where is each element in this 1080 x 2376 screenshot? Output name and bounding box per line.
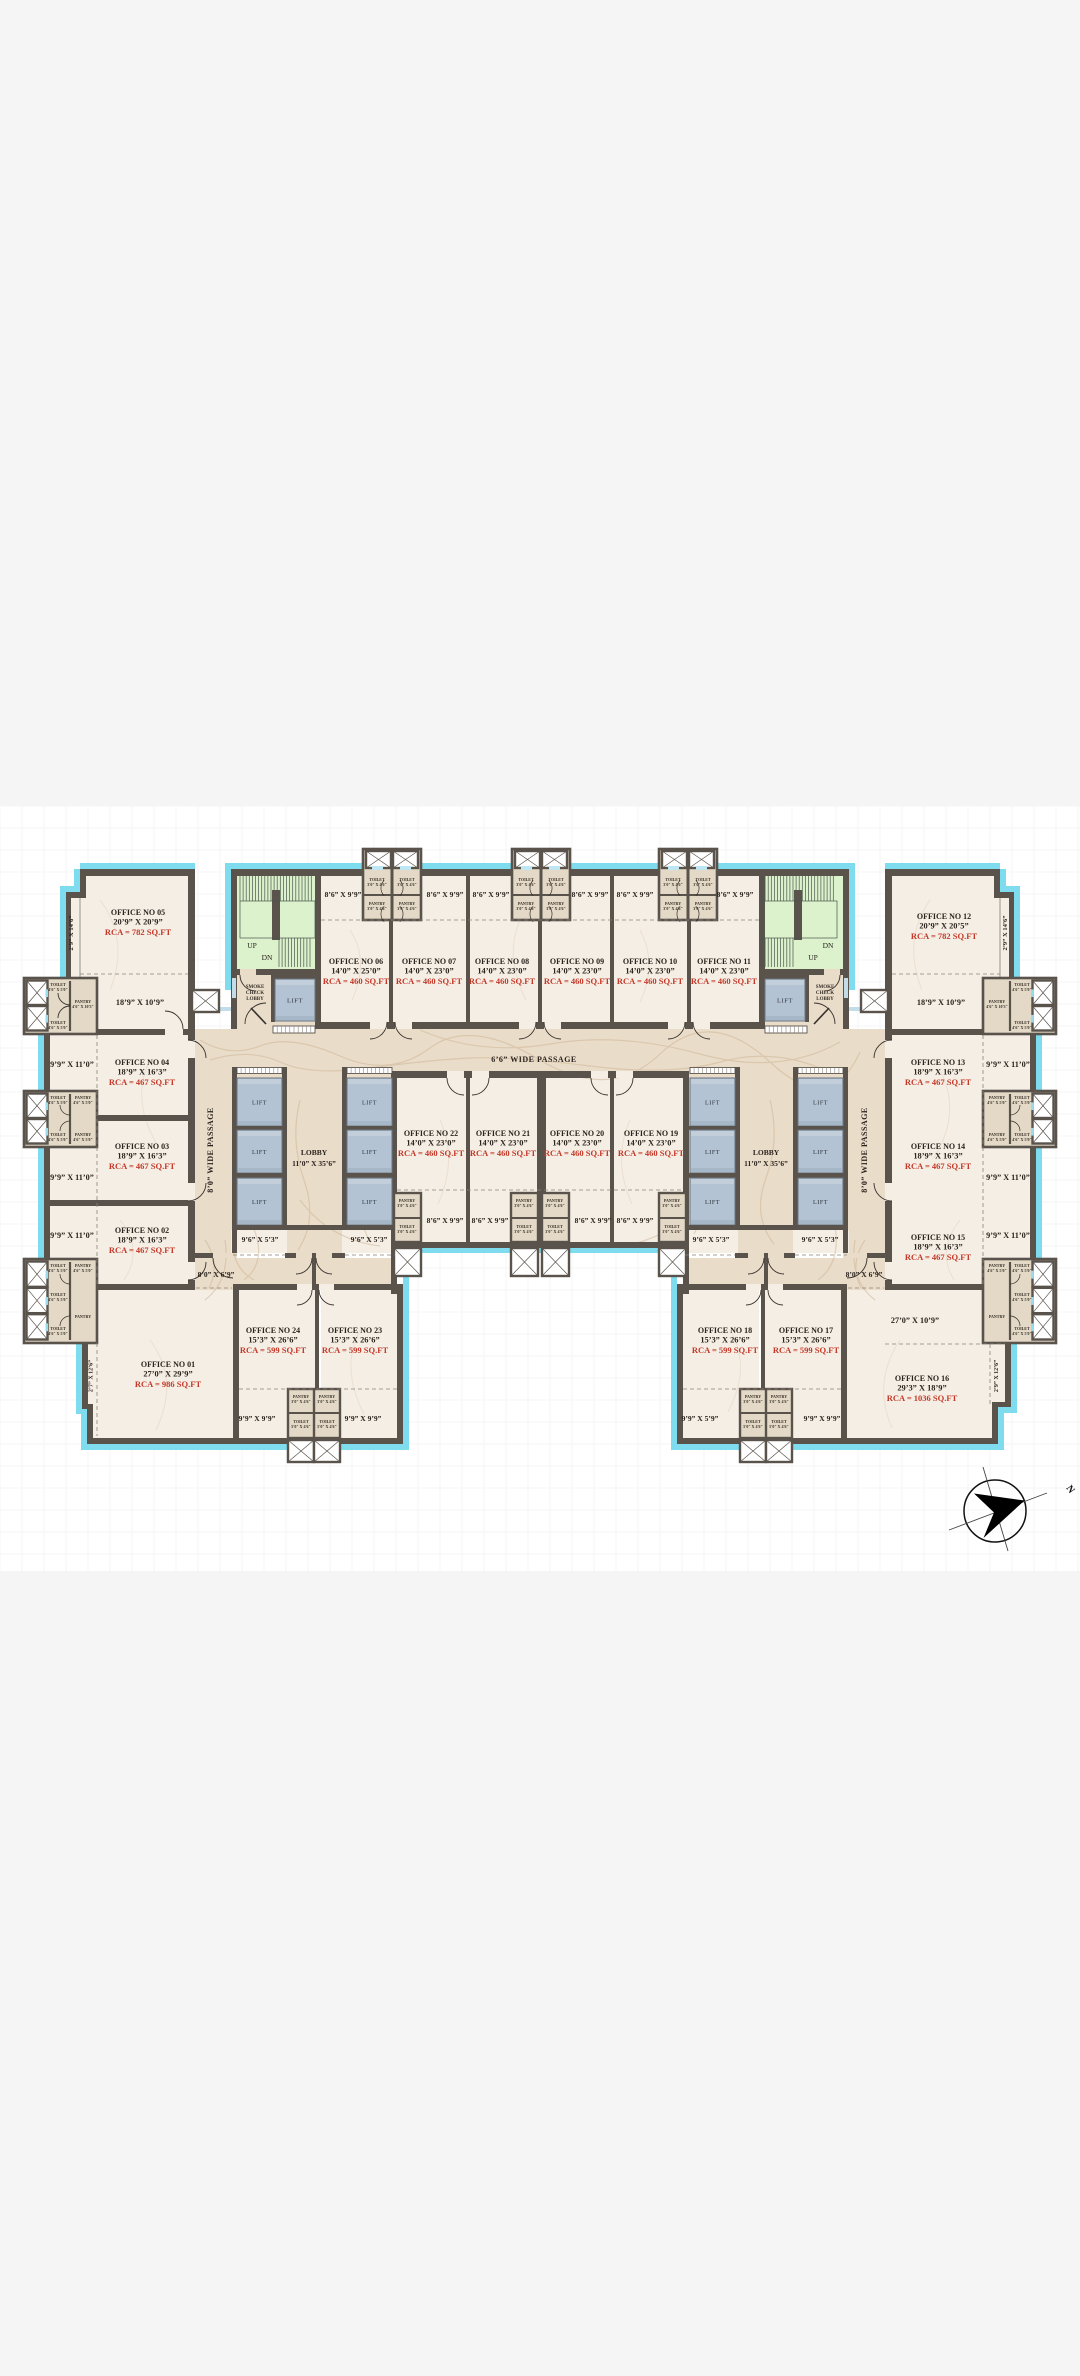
svg-text:20’9” X 20’9”: 20’9” X 20’9” — [113, 918, 162, 927]
svg-text:9’9” X 5’9”: 9’9” X 5’9” — [682, 1414, 719, 1423]
svg-text:11’0” X 35’6”: 11’0” X 35’6” — [744, 1159, 788, 1168]
svg-text:LIFT: LIFT — [287, 998, 303, 1005]
svg-text:LIFT: LIFT — [362, 1200, 377, 1206]
svg-text:LIFT: LIFT — [705, 1150, 720, 1156]
svg-text:LIFT: LIFT — [813, 1200, 828, 1206]
svg-text:9’9” X 11’0”: 9’9” X 11’0” — [986, 1173, 1030, 1182]
svg-text:SMOKE: SMOKE — [246, 985, 265, 990]
svg-text:18’9” X 16’3”: 18’9” X 16’3” — [117, 1236, 166, 1245]
svg-text:4'6" X 5'0": 4'6" X 5'0" — [1012, 1331, 1032, 1336]
svg-text:18’9” X 16’3”: 18’9” X 16’3” — [117, 1068, 166, 1077]
svg-text:8’6” X 9’9”: 8’6” X 9’9” — [325, 890, 362, 899]
svg-text:LOBBY: LOBBY — [753, 1148, 780, 1157]
svg-text:OFFICE NO 08: OFFICE NO 08 — [475, 957, 529, 966]
svg-text:OFFICE NO 23: OFFICE NO 23 — [328, 1326, 382, 1335]
svg-text:8’6” X 9’9”: 8’6” X 9’9” — [572, 890, 609, 899]
svg-text:5'0" X 4'6": 5'0" X 4'6" — [291, 1424, 311, 1429]
svg-text:CHECK: CHECK — [816, 991, 834, 996]
svg-text:8’6” X 9’9”: 8’6” X 9’9” — [617, 890, 654, 899]
svg-text:OFFICE NO 14: OFFICE NO 14 — [911, 1142, 965, 1151]
svg-text:4'6" X 5'0": 4'6" X 5'0" — [48, 1331, 68, 1336]
svg-text:9’9” X 11’0”: 9’9” X 11’0” — [50, 1231, 94, 1240]
svg-text:3'0" X 4'6": 3'0" X 4'6" — [367, 882, 387, 887]
svg-text:9’9” X 11’0”: 9’9” X 11’0” — [50, 1173, 94, 1182]
svg-text:4'6" X 5'0": 4'6" X 5'0" — [73, 1100, 93, 1105]
svg-text:UP: UP — [808, 953, 818, 962]
svg-text:18’9” X 16’3”: 18’9” X 16’3” — [913, 1068, 962, 1077]
svg-text:18’9” X 10’9”: 18’9” X 10’9” — [917, 998, 965, 1007]
svg-text:RCA = 460 SQ.FT: RCA = 460 SQ.FT — [544, 976, 611, 986]
svg-text:8’6” X 9’9”: 8’6” X 9’9” — [617, 1216, 654, 1225]
svg-text:OFFICE NO 04: OFFICE NO 04 — [115, 1058, 169, 1067]
svg-text:18’9” X 10’9”: 18’9” X 10’9” — [116, 998, 164, 1007]
svg-text:OFFICE NO 21: OFFICE NO 21 — [476, 1129, 530, 1138]
svg-text:RCA = 986 SQ.FT: RCA = 986 SQ.FT — [135, 1379, 202, 1389]
svg-text:3'0" X 4'6": 3'0" X 4'6" — [769, 1399, 789, 1404]
svg-text:4'6" X 10'3": 4'6" X 10'3" — [986, 1004, 1008, 1009]
svg-text:5'0" X 4'6": 5'0" X 4'6" — [317, 1424, 337, 1429]
svg-text:RCA = 460 SQ.FT: RCA = 460 SQ.FT — [544, 1148, 611, 1158]
svg-text:PANTRY: PANTRY — [75, 1314, 91, 1319]
svg-text:LIFT: LIFT — [252, 1200, 267, 1206]
svg-text:RCA = 599 SQ.FT: RCA = 599 SQ.FT — [240, 1345, 307, 1355]
svg-text:SMOKE: SMOKE — [816, 985, 835, 990]
svg-text:4'6" X 10'3": 4'6" X 10'3" — [72, 1004, 94, 1009]
svg-text:3'0" X 4'6": 3'0" X 4'6" — [662, 1203, 682, 1208]
svg-text:2’9” X 14’6”: 2’9” X 14’6” — [68, 915, 75, 950]
svg-text:OFFICE NO 01: OFFICE NO 01 — [141, 1360, 195, 1369]
svg-text:3'0" X 4'6": 3'0" X 4'6" — [663, 882, 683, 887]
svg-text:4'6" X 5'0": 4'6" X 5'0" — [987, 1268, 1007, 1273]
svg-text:8’6” X 9’9”: 8’6” X 9’9” — [473, 890, 510, 899]
svg-text:3'0" X 4'6": 3'0" X 4'6" — [545, 1229, 565, 1234]
svg-text:OFFICE NO 20: OFFICE NO 20 — [550, 1129, 604, 1138]
svg-text:9’9” X 9’9”: 9’9” X 9’9” — [345, 1414, 382, 1423]
svg-text:RCA = 467 SQ.FT: RCA = 467 SQ.FT — [109, 1161, 176, 1171]
svg-text:5'0" X 4'6": 5'0" X 4'6" — [769, 1424, 789, 1429]
svg-text:LOBBY: LOBBY — [246, 997, 264, 1002]
svg-text:14’0” X 23’0”: 14’0” X 23’0” — [625, 967, 674, 976]
svg-text:LIFT: LIFT — [705, 1200, 720, 1206]
svg-text:RCA = 460 SQ.FT: RCA = 460 SQ.FT — [617, 976, 684, 986]
svg-text:8’6” X 9’9”: 8’6” X 9’9” — [575, 1216, 612, 1225]
svg-text:18’9” X 16’3”: 18’9” X 16’3” — [913, 1152, 962, 1161]
svg-text:15’3” X 26’6”: 15’3” X 26’6” — [330, 1336, 379, 1345]
svg-text:14’0” X 23’0”: 14’0” X 23’0” — [406, 1139, 455, 1148]
svg-text:OFFICE NO 07: OFFICE NO 07 — [402, 957, 456, 966]
svg-text:8’0” X 6’9”: 8’0” X 6’9” — [198, 1270, 235, 1279]
svg-text:3'0" X 4'6": 3'0" X 4'6" — [545, 1203, 565, 1208]
svg-text:LOBBY: LOBBY — [816, 997, 834, 1002]
svg-text:RCA = 460 SQ.FT: RCA = 460 SQ.FT — [398, 1148, 465, 1158]
svg-text:4'6" X 5'0": 4'6" X 5'0" — [1012, 1297, 1032, 1302]
svg-text:OFFICE NO 11: OFFICE NO 11 — [697, 957, 751, 966]
svg-text:5'0" X 4'6": 5'0" X 4'6" — [743, 1424, 763, 1429]
svg-text:RCA = 460 SQ.FT: RCA = 460 SQ.FT — [469, 976, 536, 986]
svg-text:4'6" X 5'0": 4'6" X 5'0" — [1012, 1100, 1032, 1105]
svg-text:9’9” X 11’0”: 9’9” X 11’0” — [50, 1060, 94, 1069]
svg-text:LIFT: LIFT — [813, 1150, 828, 1156]
svg-text:LIFT: LIFT — [252, 1150, 267, 1156]
svg-text:OFFICE NO 09: OFFICE NO 09 — [550, 957, 604, 966]
svg-text:4'6" X 5'0": 4'6" X 5'0" — [1012, 1025, 1032, 1030]
svg-text:RCA = 467 SQ.FT: RCA = 467 SQ.FT — [109, 1077, 176, 1087]
svg-text:RCA = 599 SQ.FT: RCA = 599 SQ.FT — [322, 1345, 389, 1355]
svg-text:4'6" X 5'0": 4'6" X 5'0" — [1012, 1137, 1032, 1142]
svg-text:RCA = 460 SQ.FT: RCA = 460 SQ.FT — [396, 976, 463, 986]
svg-text:LIFT: LIFT — [705, 1101, 720, 1107]
svg-text:8’6” X 9’9”: 8’6” X 9’9” — [427, 1216, 464, 1225]
svg-text:RCA = 599 SQ.FT: RCA = 599 SQ.FT — [773, 1345, 840, 1355]
svg-text:8’0” WIDE PASSAGE: 8’0” WIDE PASSAGE — [860, 1107, 869, 1193]
svg-text:LIFT: LIFT — [777, 998, 793, 1005]
svg-text:4'6" X 5'0": 4'6" X 5'0" — [48, 1025, 68, 1030]
svg-text:RCA = 460 SQ.FT: RCA = 460 SQ.FT — [618, 1148, 685, 1158]
svg-text:9’9” X 11’0”: 9’9” X 11’0” — [986, 1231, 1030, 1240]
svg-text:3'0" X 4'6": 3'0" X 4'6" — [291, 1399, 311, 1404]
svg-text:RCA = 467 SQ.FT: RCA = 467 SQ.FT — [905, 1077, 972, 1087]
svg-text:15’3” X 26’6”: 15’3” X 26’6” — [781, 1336, 830, 1345]
svg-text:8’6” X 9’9”: 8’6” X 9’9” — [717, 890, 754, 899]
svg-text:2’9” X 12’6”: 2’9” X 12’6” — [994, 1360, 1000, 1392]
svg-text:3'0" X 4'6": 3'0" X 4'6" — [662, 1229, 682, 1234]
svg-text:3'0" X 4'6": 3'0" X 4'6" — [397, 1229, 417, 1234]
svg-text:LIFT: LIFT — [362, 1150, 377, 1156]
svg-text:8’0” WIDE PASSAGE: 8’0” WIDE PASSAGE — [206, 1107, 215, 1193]
svg-text:14’0” X 23’0”: 14’0” X 23’0” — [552, 967, 601, 976]
svg-text:14’0” X 23’0”: 14’0” X 23’0” — [478, 1139, 527, 1148]
svg-text:RCA = 1036 SQ.FT: RCA = 1036 SQ.FT — [887, 1393, 958, 1403]
svg-text:RCA = 782 SQ.FT: RCA = 782 SQ.FT — [105, 927, 172, 937]
svg-text:UP: UP — [247, 941, 257, 950]
svg-text:9’6” X 5’3”: 9’6” X 5’3” — [802, 1235, 839, 1244]
svg-text:OFFICE NO 15: OFFICE NO 15 — [911, 1233, 965, 1242]
svg-text:RCA = 467 SQ.FT: RCA = 467 SQ.FT — [905, 1161, 972, 1171]
svg-text:3'0" X 4'6": 3'0" X 4'6" — [397, 1203, 417, 1208]
svg-text:15’3” X 26’6”: 15’3” X 26’6” — [700, 1336, 749, 1345]
svg-text:6’6” WIDE PASSAGE: 6’6” WIDE PASSAGE — [491, 1055, 577, 1064]
svg-text:DN: DN — [262, 953, 273, 962]
svg-text:3'0" X 4'6": 3'0" X 4'6" — [397, 882, 417, 887]
svg-text:9’6” X 5’3”: 9’6” X 5’3” — [693, 1235, 730, 1244]
svg-text:RCA = 467 SQ.FT: RCA = 467 SQ.FT — [109, 1245, 176, 1255]
svg-text:14’0” X 23’0”: 14’0” X 23’0” — [552, 1139, 601, 1148]
svg-text:3'0" X 4'6": 3'0" X 4'6" — [514, 1229, 534, 1234]
svg-text:LIFT: LIFT — [362, 1101, 377, 1107]
svg-text:14’0” X 25’0”: 14’0” X 25’0” — [331, 967, 380, 976]
svg-text:4'6" X 5'0": 4'6" X 5'0" — [48, 1100, 68, 1105]
svg-text:RCA = 460 SQ.FT: RCA = 460 SQ.FT — [470, 1148, 537, 1158]
svg-text:4'6" X 5'0": 4'6" X 5'0" — [73, 1137, 93, 1142]
svg-text:LIFT: LIFT — [813, 1101, 828, 1107]
svg-text:20’9” X 20’5”: 20’9” X 20’5” — [919, 922, 968, 931]
svg-text:14’0” X 23’0”: 14’0” X 23’0” — [626, 1139, 675, 1148]
svg-text:RCA = 782 SQ.FT: RCA = 782 SQ.FT — [911, 931, 978, 941]
svg-text:8’0” X 6’9”: 8’0” X 6’9” — [846, 1270, 883, 1279]
svg-text:3'0" X 4'6": 3'0" X 4'6" — [743, 1399, 763, 1404]
svg-text:14’0” X 23’0”: 14’0” X 23’0” — [404, 967, 453, 976]
svg-text:27’0” X 29’9”: 27’0” X 29’9” — [143, 1370, 192, 1379]
svg-text:2’7” X 12’6”: 2’7” X 12’6” — [89, 1360, 95, 1392]
svg-text:9’6” X 5’3”: 9’6” X 5’3” — [351, 1235, 388, 1244]
svg-text:OFFICE NO 17: OFFICE NO 17 — [779, 1326, 833, 1335]
svg-text:3'0" X 4'6": 3'0" X 4'6" — [317, 1399, 337, 1404]
svg-text:29’3” X 18’9”: 29’3” X 18’9” — [897, 1384, 946, 1393]
svg-text:18’9” X 16’3”: 18’9” X 16’3” — [913, 1243, 962, 1252]
svg-text:OFFICE NO 12: OFFICE NO 12 — [917, 912, 971, 921]
svg-text:PANTRY: PANTRY — [989, 1314, 1005, 1319]
svg-text:4'6" X 5'0": 4'6" X 5'0" — [1012, 1268, 1032, 1273]
svg-text:LIFT: LIFT — [252, 1101, 267, 1107]
svg-text:OFFICE NO 24: OFFICE NO 24 — [246, 1326, 300, 1335]
svg-text:4'6" X 5'0": 4'6" X 5'0" — [987, 1100, 1007, 1105]
svg-text:15’3” X 26’6”: 15’3” X 26’6” — [248, 1336, 297, 1345]
svg-text:9’9” X 9’9”: 9’9” X 9’9” — [239, 1414, 276, 1423]
svg-text:27’0” X 10’9”: 27’0” X 10’9” — [891, 1316, 939, 1325]
svg-text:9’6” X 5’3”: 9’6” X 5’3” — [242, 1235, 279, 1244]
svg-text:RCA = 599 SQ.FT: RCA = 599 SQ.FT — [692, 1345, 759, 1355]
svg-text:4'6" X 5'0": 4'6" X 5'0" — [1012, 987, 1032, 992]
svg-text:OFFICE NO 02: OFFICE NO 02 — [115, 1226, 169, 1235]
svg-text:11’0” X 35’6”: 11’0” X 35’6” — [292, 1159, 336, 1168]
svg-text:8’6” X 9’9”: 8’6” X 9’9” — [472, 1216, 509, 1225]
svg-text:9’9” X 11’0”: 9’9” X 11’0” — [986, 1060, 1030, 1069]
svg-text:RCA = 460 SQ.FT: RCA = 460 SQ.FT — [691, 976, 758, 986]
svg-text:4'6" X 5'0": 4'6" X 5'0" — [48, 1297, 68, 1302]
svg-text:4'6" X 5'0": 4'6" X 5'0" — [987, 1137, 1007, 1142]
svg-text:RCA = 467 SQ.FT: RCA = 467 SQ.FT — [905, 1252, 972, 1262]
svg-text:3'0" X 4'6": 3'0" X 4'6" — [546, 882, 566, 887]
svg-text:3'0" X 4'6": 3'0" X 4'6" — [516, 882, 536, 887]
svg-text:9’9” X 9’9”: 9’9” X 9’9” — [804, 1414, 841, 1423]
svg-text:4'6" X 5'0": 4'6" X 5'0" — [48, 1137, 68, 1142]
svg-text:CHECK: CHECK — [246, 991, 264, 996]
svg-text:14’0” X 23’0”: 14’0” X 23’0” — [477, 967, 526, 976]
svg-text:LOBBY: LOBBY — [301, 1148, 328, 1157]
svg-text:3'0" X 4'6": 3'0" X 4'6" — [693, 882, 713, 887]
svg-text:8’6” X 9’9”: 8’6” X 9’9” — [427, 890, 464, 899]
svg-text:OFFICE NO 18: OFFICE NO 18 — [698, 1326, 752, 1335]
svg-text:OFFICE NO 22: OFFICE NO 22 — [404, 1129, 458, 1138]
svg-text:DN: DN — [823, 941, 834, 950]
svg-text:2’9” X 14’6”: 2’9” X 14’6” — [1002, 915, 1009, 950]
svg-text:14’0” X 23’0”: 14’0” X 23’0” — [699, 967, 748, 976]
svg-text:OFFICE NO 13: OFFICE NO 13 — [911, 1058, 965, 1067]
svg-text:OFFICE NO 19: OFFICE NO 19 — [624, 1129, 678, 1138]
svg-text:OFFICE NO 06: OFFICE NO 06 — [329, 957, 383, 966]
svg-text:4'6" X 5'0": 4'6" X 5'0" — [48, 1268, 68, 1273]
svg-text:RCA = 460 SQ.FT: RCA = 460 SQ.FT — [323, 976, 390, 986]
svg-text:OFFICE NO 16: OFFICE NO 16 — [895, 1374, 949, 1383]
svg-text:18’9” X 16’3”: 18’9” X 16’3” — [117, 1152, 166, 1161]
svg-text:OFFICE NO 10: OFFICE NO 10 — [623, 957, 677, 966]
svg-text:3'0" X 4'6": 3'0" X 4'6" — [514, 1203, 534, 1208]
svg-text:4'6" X 5'0": 4'6" X 5'0" — [48, 987, 68, 992]
svg-text:4'6" X 5'0": 4'6" X 5'0" — [73, 1268, 93, 1273]
svg-text:OFFICE NO 03: OFFICE NO 03 — [115, 1142, 169, 1151]
svg-text:OFFICE NO 05: OFFICE NO 05 — [111, 908, 165, 917]
